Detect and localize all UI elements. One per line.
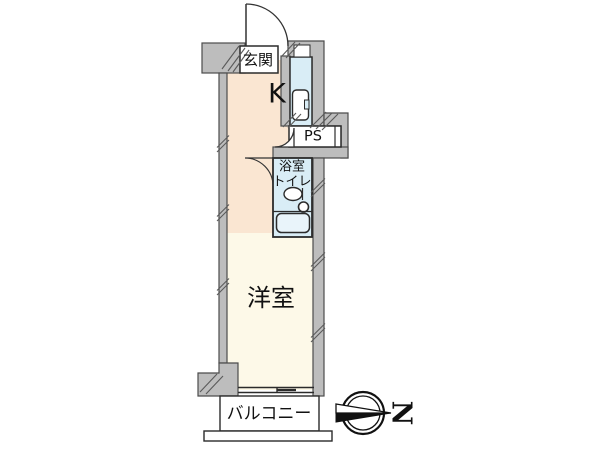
compass: N — [336, 392, 417, 434]
kitchen-sink-notch — [305, 100, 310, 109]
entrance-door-swing-arc — [246, 4, 288, 46]
wall-bottom-left-block — [198, 363, 238, 396]
wall-bath-top — [273, 147, 348, 158]
pipe-space-label: PS — [304, 129, 322, 145]
kitchen-label: K — [268, 79, 287, 110]
bathtub-icon — [277, 214, 310, 233]
balcony-label: バルコニー — [227, 404, 312, 424]
entrance-label: 玄関 — [243, 51, 273, 69]
north-label: N — [386, 401, 417, 426]
bathroom-label-line2: トイレ — [272, 175, 311, 190]
floor-plan-canvas: 玄関 K PS 浴室 トイレ 洋室 バルコニー N — [0, 0, 600, 450]
western-room-label: 洋室 — [247, 284, 295, 312]
bathroom-label-line1: 浴室 — [279, 159, 305, 175]
balcony-rail — [204, 431, 332, 441]
washbasin-icon — [299, 202, 309, 212]
floor-plan-page: 玄関 K PS 浴室 トイレ 洋室 バルコニー N — [0, 0, 600, 450]
